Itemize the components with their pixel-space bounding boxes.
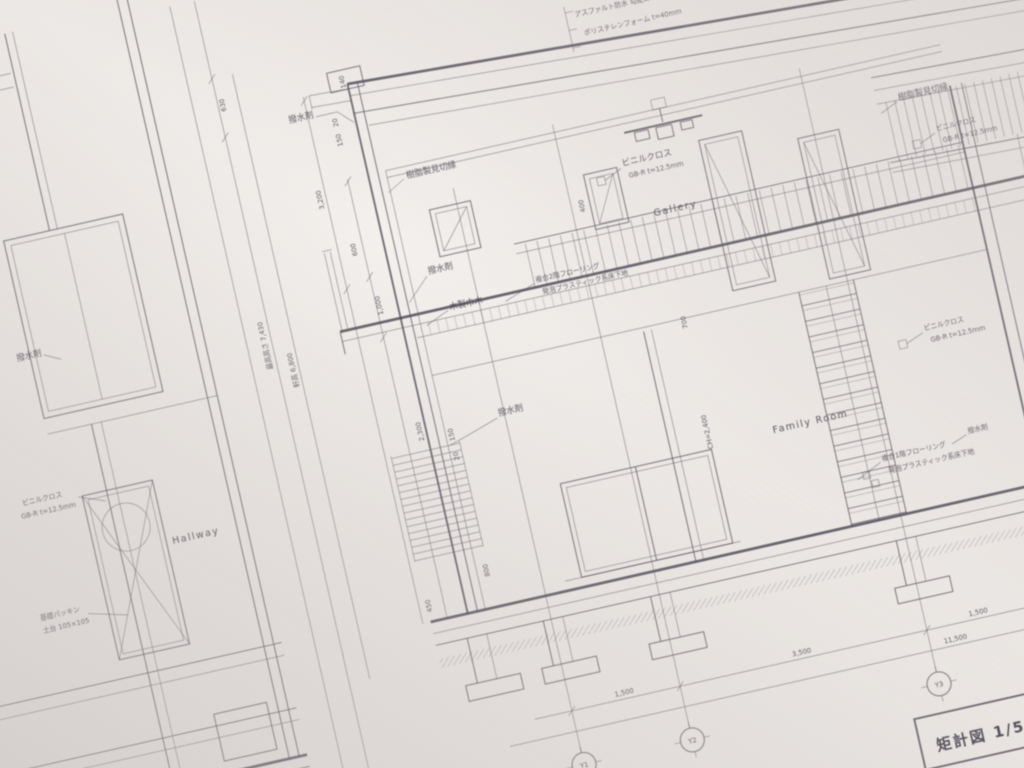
blueprint-photo: 1,500 3,500 1,500 11,500 Y1 Y2 Y xyxy=(0,0,1024,768)
blueprint-drawing: 1,500 3,500 1,500 11,500 Y1 Y2 Y xyxy=(0,0,1024,768)
shadow-top-right xyxy=(0,0,1024,768)
